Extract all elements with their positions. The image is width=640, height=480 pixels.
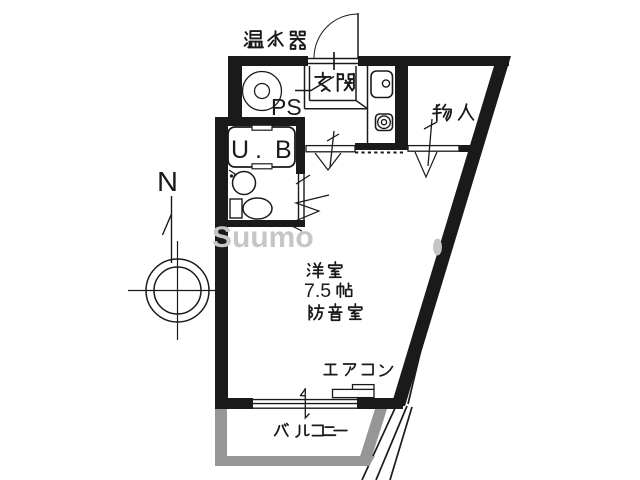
svg-text:7.5: 7.5 [304, 280, 331, 302]
svg-text:U: U [231, 136, 249, 164]
svg-text:Suumo: Suumo [212, 221, 314, 254]
svg-text:N: N [157, 166, 178, 197]
svg-text:B: B [275, 136, 292, 164]
svg-text:.: . [255, 136, 262, 164]
svg-text:PS: PS [271, 94, 302, 120]
